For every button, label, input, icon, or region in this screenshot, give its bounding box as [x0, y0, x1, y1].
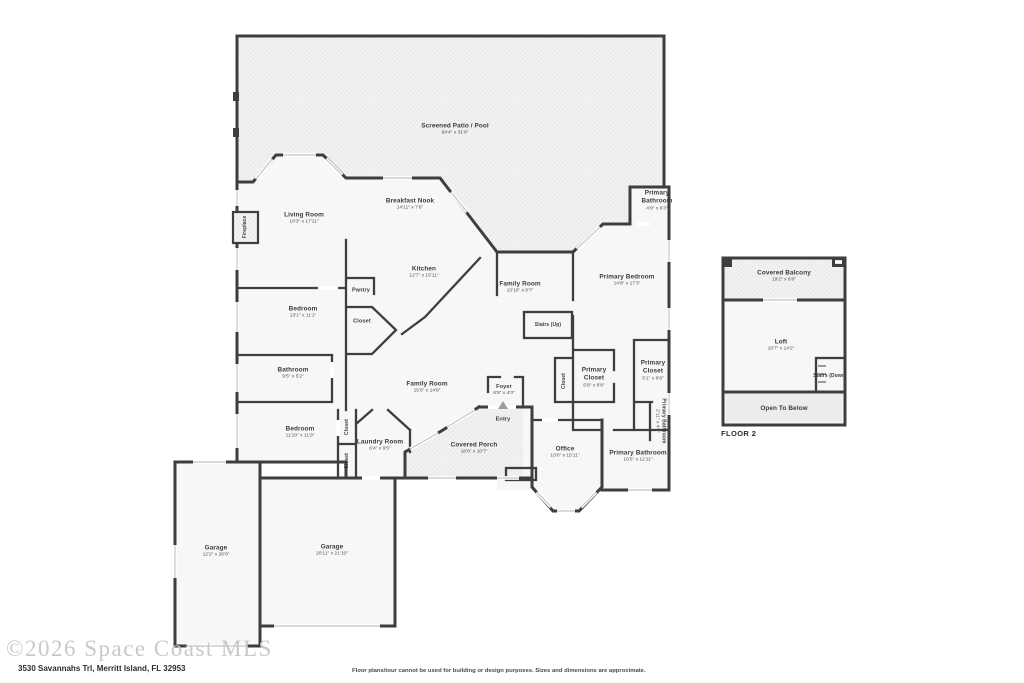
room-name: Closet	[344, 453, 351, 469]
room-label-open-to-below: Open To Below	[760, 405, 807, 413]
room-name: Primary Bathroom	[635, 189, 679, 206]
room-dims: 64'4" x 31'6"	[421, 131, 488, 137]
room-dims: 4'9" x 6'3"	[635, 206, 679, 212]
room-label-closet-b: Closet	[344, 453, 351, 469]
room-label-closet-a: Closet	[344, 419, 351, 435]
room-name: Open To Below	[760, 405, 807, 413]
mls-watermark: ©2026 Space Coast MLS	[6, 636, 273, 662]
room-label-bedroom-1: Bedroom 13'1" x 11'1"	[289, 306, 318, 321]
room-label-garage-left: Garage 12'2" x 26'0"	[203, 545, 230, 560]
room-label-primary-bathroom-main: Primary Bathroom 16'5" x 12'11"	[609, 450, 666, 465]
room-label-laundry: Laundry Room 6'4" x 9'5"	[357, 439, 403, 454]
room-label-primary-closet-left: Primary Closet 5'8" x 8'8"	[572, 366, 616, 389]
room-label-closet-bedroom1: Closet	[353, 318, 371, 325]
room-dims: 13'10" x 8'7"	[499, 289, 540, 295]
room-name: Closet	[561, 373, 568, 389]
room-dims: 11'10" x 11'9"	[286, 434, 315, 440]
room-name: Stairs (Up)	[535, 322, 561, 329]
floor2-title: FLOOR 2	[721, 429, 756, 438]
room-dims: 18'3" x 17'11"	[284, 220, 324, 226]
room-label-kitchen: Kitchen 12'7" x 15'11"	[409, 266, 438, 281]
room-name: Primary Closet	[572, 366, 616, 383]
room-name: Pantry	[352, 287, 370, 294]
room-label-primary-closet-right: Primary Closet 5'1" x 8'8"	[636, 359, 670, 382]
room-name: Fireplace	[242, 216, 249, 239]
room-dims: 6'4" x 9'5"	[357, 447, 403, 453]
room-label-closet-hall: Closet	[561, 373, 568, 389]
room-dims: 19'2" x 6'0"	[757, 278, 811, 284]
room-name: Primary Closet	[636, 359, 670, 376]
room-name: Entry	[496, 416, 511, 423]
room-dims: 9'5" x 5'2"	[278, 375, 309, 381]
room-dims: 18'6" x 10'7"	[451, 450, 498, 456]
room-label-pantry: Pantry	[352, 287, 370, 294]
room-label-covered-balcony: Covered Balcony 19'2" x 6'0"	[757, 270, 811, 285]
patio-post	[233, 128, 239, 137]
room-dims: 13'1" x 11'1"	[289, 314, 318, 320]
room-label-breakfast-nook: Breakfast Nook 14'11" x 7'6"	[386, 198, 434, 213]
room-label-primary-bathroom-small: Primary Bathroom 2'11" x 4'0"	[654, 397, 667, 445]
room-dims: 14'11" x 7'6"	[386, 206, 434, 212]
room-name: Closet	[353, 318, 371, 325]
room-label-family-room-center: Family Room 15'6" x 14'9"	[406, 381, 447, 396]
room-label-bathroom: Bathroom 9'5" x 5'2"	[278, 367, 309, 382]
room-dims: 5'1" x 8'8"	[636, 376, 670, 382]
room-dims: 12'7" x 15'11"	[409, 274, 438, 280]
room-dims: 15'6" x 14'9"	[406, 389, 447, 395]
room-dims: 20'11" x 21'10"	[316, 552, 348, 558]
room-label-loft: Loft 18'7" x 14'2"	[768, 339, 795, 354]
room-name: Primary Bathroom	[660, 397, 667, 445]
room-label-entry: Entry	[496, 416, 511, 423]
patio-post	[233, 92, 239, 101]
room-label-covered-porch: Covered Porch 18'6" x 10'7"	[451, 442, 498, 457]
room-label-family-room-upper: Family Room 13'10" x 8'7"	[499, 281, 540, 296]
room-name: Stairs (Down)	[813, 373, 847, 380]
balcony-post	[723, 258, 732, 267]
room-label-primary-bedroom: Primary Bedroom 14'8" x 17'3"	[599, 274, 654, 289]
room-label-stairs-down: Stairs (Down)	[813, 373, 847, 380]
room-label-screened-patio: Screened Patio / Pool 64'4" x 31'6"	[421, 123, 488, 138]
disclaimer-text: Floor plans/tour cannot be used for buil…	[352, 668, 646, 674]
room-dims: 5'8" x 8'8"	[572, 383, 616, 389]
room-label-living-room: Living Room 18'3" x 17'11"	[284, 212, 324, 227]
room-label-office: Office 10'0" x 15'11"	[550, 446, 579, 461]
room-dims: 18'7" x 14'2"	[768, 347, 795, 353]
floor-plan-page: Screened Patio / Pool 64'4" x 31'6" Livi…	[0, 0, 1024, 683]
room-label-foyer: Foyer 6'5" x 4'0"	[493, 384, 514, 398]
room-dims: 10'0" x 15'11"	[550, 454, 579, 460]
room-label-stairs-up: Stairs (Up)	[535, 322, 561, 329]
room-dims: 6'5" x 4'0"	[493, 391, 514, 397]
room-label-bedroom-2: Bedroom 11'10" x 11'9"	[286, 426, 315, 441]
room-dims: 16'5" x 12'11"	[609, 458, 666, 464]
room-dims: 14'8" x 17'3"	[599, 282, 654, 288]
floor-plan-drawing	[0, 0, 1024, 683]
room-label-garage-right: Garage 20'11" x 21'10"	[316, 544, 348, 559]
room-dims: 12'2" x 26'0"	[203, 553, 230, 559]
room-name: Closet	[344, 419, 351, 435]
property-address: 3530 Savannahs Trl, Merritt Island, FL 3…	[18, 664, 185, 673]
room-label-fireplace: Fireplace	[242, 216, 249, 239]
room-label-primary-bathroom-top: Primary Bathroom 4'9" x 6'3"	[635, 189, 679, 212]
